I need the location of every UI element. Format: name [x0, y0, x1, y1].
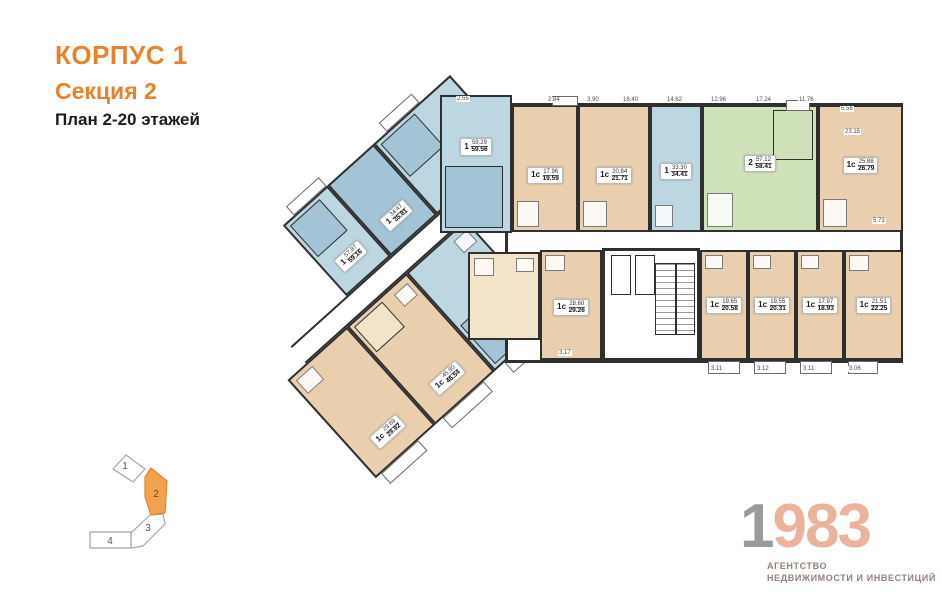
keyplan-label-2: 2: [153, 489, 159, 500]
apartment-unit[interactable]: 1с 19.6520.58: [700, 250, 748, 360]
dimension-label: 2.55: [456, 96, 470, 102]
bathroom-fixture: [849, 255, 869, 271]
apartment-unit[interactable]: 1 33.3034.41: [650, 105, 702, 232]
bathroom-fixture: [516, 258, 534, 272]
bathroom-fixture: [707, 193, 733, 227]
elevator-shaft: [635, 255, 655, 295]
floorplan-page: КОРПУС 1 Секция 2 План 2-20 этажей 1 57.…: [0, 0, 941, 600]
apartment-label: 1с 29.6929.92: [368, 413, 406, 450]
dimension-label: 3.11: [710, 366, 723, 372]
apartment-unit[interactable]: 1с 20.8421.71: [578, 105, 650, 232]
dimension-label: 17.24: [755, 97, 772, 103]
keyplan-label-3: 3: [145, 523, 151, 534]
entry-hall-rooms: [468, 252, 540, 340]
dimension-label: 14.62: [666, 97, 683, 103]
apartment-unit[interactable]: 1с 17.9619.59: [512, 105, 578, 232]
room-area: [445, 166, 503, 228]
bathroom-fixture: [545, 255, 565, 271]
stair-core: [602, 248, 700, 361]
dimension-label: 16.40: [622, 97, 639, 103]
bathroom-fixture: [705, 255, 723, 269]
apartment-label: 1с 19.6520.58: [706, 297, 742, 315]
apartment-label: 1с 19.5520.31: [754, 297, 790, 315]
bathroom-fixture: [296, 366, 324, 394]
apartment-unit[interactable]: 1с 17.9718.93: [796, 250, 844, 360]
dimension-label: 3.12: [756, 366, 770, 372]
keyplan-section-1[interactable]: [113, 455, 145, 482]
apartment-label: 1с 21.5122.25: [856, 297, 892, 315]
bathroom-fixture: [801, 255, 819, 269]
keyplan-label-4: 4: [107, 536, 113, 547]
room-area: [773, 110, 813, 160]
dimension-label: 11.76: [798, 97, 815, 103]
bathroom-fixture: [823, 199, 847, 227]
apartment-unit[interactable]: 1с 21.5122.25: [844, 250, 903, 360]
dimension-label: 3.17: [558, 350, 572, 356]
apartment-label: 1 33.3034.41: [660, 163, 691, 181]
logo-digit-1: 1: [740, 492, 772, 561]
apartment-label: 1 34.4735.81: [379, 198, 414, 232]
logo-digits-983: 983: [772, 492, 869, 561]
apartment-unit[interactable]: 1с 25.8826.79: [818, 105, 903, 232]
apartment-label: 1с 20.8421.71: [596, 167, 632, 185]
staircase: [655, 263, 695, 335]
dimension-label: 12.96: [710, 97, 727, 103]
keyplan-label-1: 1: [122, 461, 128, 472]
apartment-label: 1с 17.9619.59: [527, 167, 563, 185]
apartment-label: 1с 25.8826.79: [843, 157, 879, 175]
dimension-label: 3.11: [802, 366, 815, 372]
apartment-unit[interactable]: 2 57.1258.41: [702, 105, 818, 232]
dimension-label: 2.84: [547, 97, 561, 103]
apartment-label: 1 59.2959.56: [460, 138, 491, 156]
dimension-label: 3.90: [586, 97, 600, 103]
dimension-label: 23.15: [844, 129, 861, 135]
bathroom-fixture: [655, 205, 673, 227]
bathroom-fixture: [453, 230, 477, 254]
apartment-label: 1с 28.6029.26: [553, 299, 589, 317]
apartment-label: 1с 45.8046.54: [428, 360, 466, 397]
dimension-label: 3.06: [848, 366, 862, 372]
dimension-label: 5.56: [840, 106, 854, 112]
bathroom-fixture: [517, 201, 539, 227]
apartment-unit[interactable]: 1 59.2959.56: [440, 95, 512, 233]
agency-logo: 1983 АГЕНТСТВО НЕДВИЖИМОСТИ И ИНВЕСТИЦИЙ: [740, 496, 940, 584]
apartment-label: 2 57.1258.41: [744, 155, 775, 173]
apartment-unit[interactable]: 1с 19.5520.31: [748, 250, 796, 360]
bathroom-fixture: [394, 283, 418, 307]
bathroom-fixture: [474, 258, 494, 276]
dimension-label: 5.73: [872, 218, 886, 224]
logo-subtitle-line2: НЕДВИЖИМОСТИ И ИНВЕСТИЦИЙ: [767, 572, 940, 584]
bathroom-fixture: [583, 201, 607, 227]
logo-subtitle-line1: АГЕНТСТВО: [767, 560, 940, 572]
elevator-shaft: [611, 255, 631, 295]
apartment-label: 1 57.8759.16: [333, 239, 368, 273]
keyplan: 1 2 3 4: [75, 435, 225, 575]
bathroom-fixture: [753, 255, 771, 269]
apartment-label: 1с 17.9718.93: [802, 297, 838, 315]
apartment-unit[interactable]: 1с 28.6029.26: [540, 250, 602, 360]
